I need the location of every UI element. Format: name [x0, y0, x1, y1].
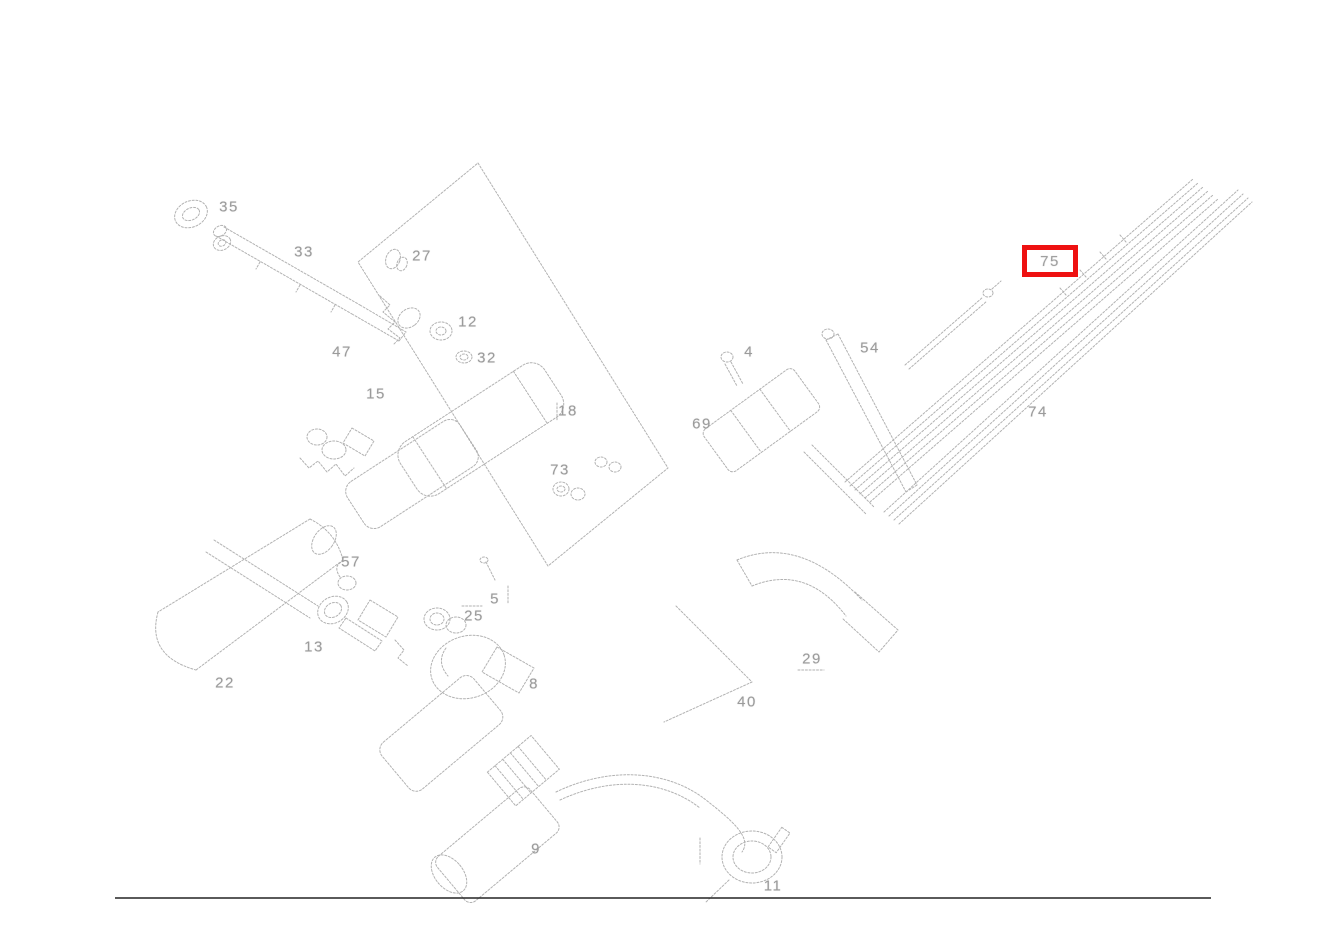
part-number-label-27[interactable]: 27 [412, 249, 432, 264]
part-number-label-40[interactable]: 40 [737, 695, 757, 710]
part-number-label-22[interactable]: 22 [215, 676, 235, 691]
part-number-label-18[interactable]: 18 [558, 404, 578, 419]
part-number-label-15[interactable]: 15 [366, 387, 386, 402]
part-labels: 3533271232471518734546955725132282940911… [0, 0, 1326, 937]
part-number-label-54[interactable]: 54 [860, 341, 880, 356]
part-number-label-13[interactable]: 13 [304, 640, 324, 655]
part-number-label-29[interactable]: 29 [802, 652, 822, 667]
parts-diagram-page: 3533271232471518734546955725132282940911… [0, 0, 1326, 937]
part-number-label-33[interactable]: 33 [294, 245, 314, 260]
highlighted-part-box[interactable]: 75 [1022, 245, 1078, 277]
part-number-label-69[interactable]: 69 [692, 417, 712, 432]
part-number-label-5[interactable]: 5 [490, 592, 500, 607]
part-number-label-47[interactable]: 47 [332, 345, 352, 360]
part-number-label-32[interactable]: 32 [477, 351, 497, 366]
part-number-label-11[interactable]: 11 [764, 879, 783, 894]
part-number-label-4[interactable]: 4 [744, 345, 754, 360]
part-number-label-8[interactable]: 8 [529, 677, 539, 692]
part-number-label-35[interactable]: 35 [219, 200, 239, 215]
part-number-label-74[interactable]: 74 [1028, 405, 1048, 420]
part-number-label-12[interactable]: 12 [458, 315, 478, 330]
part-number-label-73[interactable]: 73 [550, 463, 570, 478]
part-number-label-25[interactable]: 25 [464, 609, 484, 624]
highlighted-part-number[interactable]: 75 [1040, 254, 1060, 269]
part-number-label-9[interactable]: 9 [531, 842, 541, 857]
part-number-label-57[interactable]: 57 [341, 555, 361, 570]
